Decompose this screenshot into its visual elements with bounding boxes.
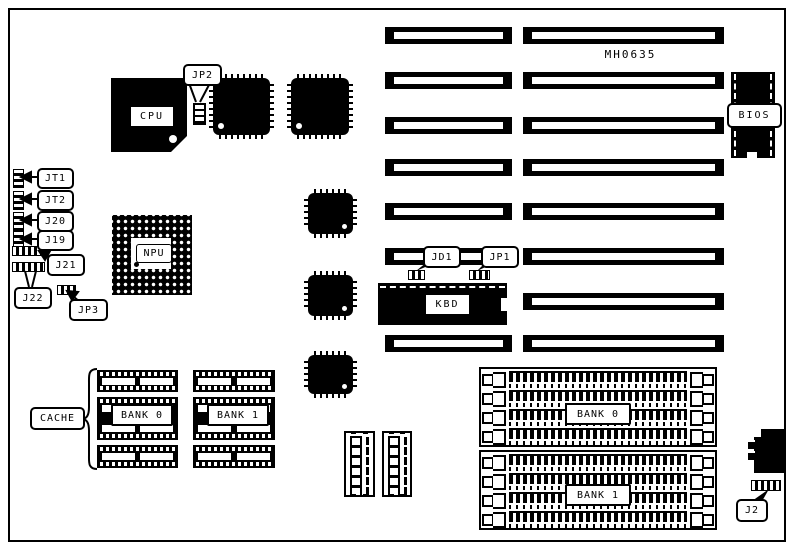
simm-socket-row [481,371,715,388]
simm-clip [493,391,506,407]
simm-clip [493,429,506,445]
connector-tab [746,440,755,449]
cache-chip [102,378,135,385]
npu-label: NPU [136,244,172,263]
dip-socket [344,431,375,497]
cache-chip [198,378,231,385]
qfp-chip-2 [287,74,353,139]
cache-chip [237,378,270,385]
isa-slot [385,117,512,134]
simm-clip [702,514,714,526]
memory-bank1-text: BANK 1 [577,490,619,501]
isa-slot [385,335,512,352]
qfp-chip-3 [304,189,357,238]
cache-chip [198,453,231,460]
j2-text: J2 [745,505,759,516]
simm-clip [702,374,714,386]
jumper-label-j22: J22 [14,287,52,309]
simm-clip [493,474,506,490]
dip-notch [351,431,356,434]
kbd-chip-notch [501,298,507,311]
cache-dip-block [193,370,275,392]
dip-pin [366,437,369,445]
dip-pin [366,447,369,455]
dip-socket [382,431,412,497]
j20-text: J20 [45,216,66,227]
board-model-value: MH0635 [605,48,657,61]
dip-notch [351,494,356,497]
jp1-jumper [469,270,490,280]
cache-chip [237,453,270,460]
simm-contacts [509,428,687,445]
j22-text: J22 [22,293,43,304]
jp1-text: JP1 [489,252,510,263]
dip-notch [400,431,405,434]
dip-pin [404,457,407,465]
kbd-label-text: KBD [435,299,459,310]
qfp-chip-4 [304,271,357,320]
jt1-jumper [13,169,24,188]
isa-slot [523,293,724,310]
motherboard-diagram: CPU JP2 [0,0,791,549]
keyboard-connector [754,437,784,473]
cpu-pin1-dot [169,135,177,143]
cache-chip [140,378,173,385]
jumper-label-jp2: JP2 [183,64,222,86]
simm-clip [493,512,506,528]
simm-contacts [509,454,687,471]
dip-pin [366,457,369,465]
j20-jumper [13,212,24,231]
simm-socket-row [481,428,715,445]
jd1-text: JD1 [431,252,452,263]
dip-pin [404,477,407,485]
isa-slot [523,203,724,220]
cache-dip-block [97,445,178,468]
keyboard-connector-top [761,429,784,438]
jt2-text: JT2 [45,195,66,206]
cache-bank0-label: BANK 0 [111,404,173,426]
simm-clip [493,372,506,388]
jumper-label-jd1: JD1 [423,246,461,268]
j22-jumper [12,262,45,272]
jumper-label-jp1: JP1 [481,246,519,268]
jp2-text: JP2 [192,70,213,81]
jp3-jumper [57,285,76,295]
isa-slot [523,248,724,265]
simm-clip [702,393,714,405]
dip-notch [363,431,368,434]
jumper-label-j20: J20 [37,211,74,232]
isa-slot [385,203,512,220]
j21-text: J21 [55,260,76,271]
jumper-label-jt1: JT1 [37,168,74,189]
simm-clip [702,431,714,443]
isa-slot [385,159,512,176]
dip-pin [404,467,407,475]
simm-clip [493,455,506,471]
jumper-label-jt2: JT2 [37,190,74,211]
isa-slot [523,27,724,44]
isa-slot [523,117,724,134]
dip-pin [404,447,407,455]
dip-notch [363,494,368,497]
simm-clip [702,495,714,507]
bios-label: BIOS [727,103,782,128]
connector-tab [746,451,755,460]
cache-dip-block [193,445,275,468]
simm-clip [702,412,714,424]
cache-chip [198,425,231,432]
cache-label: CACHE [30,407,85,430]
cache-bank1-label: BANK 1 [207,404,269,426]
dip-notch [389,494,394,497]
isa-slot [523,159,724,176]
cache-label-text: CACHE [40,413,75,424]
qfp5-pin1-dot [342,384,347,389]
cache-chip [102,425,135,432]
cpu-label-text: CPU [140,111,164,122]
qfp2-pin1-dot [296,123,302,129]
jumper-label-jp3: JP3 [69,299,108,321]
simm-contacts [509,371,687,388]
dip-pin [366,477,369,485]
cache-chip [237,425,270,432]
qfp1-pin1-dot [218,123,224,129]
isa-slot [523,335,724,352]
jd1-jumper [408,270,425,280]
simm-clip [702,476,714,488]
bios-label-text: BIOS [738,110,770,121]
cache-dip-block [97,370,178,392]
simm-clip [493,493,506,509]
jumper-label-j2: J2 [736,499,768,522]
qfp4-pin1-dot [342,306,347,311]
jt2-jumper [13,191,24,210]
qfp3-pin1-dot [342,224,347,229]
kbd-label: KBD [424,293,471,316]
j19-text: J19 [45,235,66,246]
npu-label-text: NPU [143,248,164,259]
isa-slot [385,27,512,44]
isa-slot [523,72,724,89]
memory-bank0-label: BANK 0 [565,403,631,425]
board-model-text: MH0635 [583,48,678,61]
simm-contacts [509,511,687,528]
jp3-text: JP3 [78,305,99,316]
dip-pin [404,437,407,445]
cache-chip [102,453,135,460]
cache-chip [140,425,173,432]
j2-jumper [751,480,781,491]
jumper-label-j21: J21 [47,254,85,276]
cache-chip [140,453,173,460]
isa-slot [385,72,512,89]
simm-clip [702,457,714,469]
qfp-chip-5 [304,351,357,398]
jumper-label-j19: J19 [37,230,74,251]
simm-socket-row [481,454,715,471]
cpu-label: CPU [129,105,175,128]
dip-notch [400,494,405,497]
cache-bank1-text: BANK 1 [217,410,259,421]
memory-bank1-label: BANK 1 [565,484,631,506]
bios-chip-notch [747,152,757,158]
cache-bank0-text: BANK 0 [121,410,163,421]
simm-clip [493,410,506,426]
dip-notch [389,431,394,434]
jt1-text: JT1 [45,173,66,184]
simm-socket-row [481,511,715,528]
jp2-jumper [193,103,206,125]
dip-pin [366,467,369,475]
memory-bank0-text: BANK 0 [577,409,619,420]
